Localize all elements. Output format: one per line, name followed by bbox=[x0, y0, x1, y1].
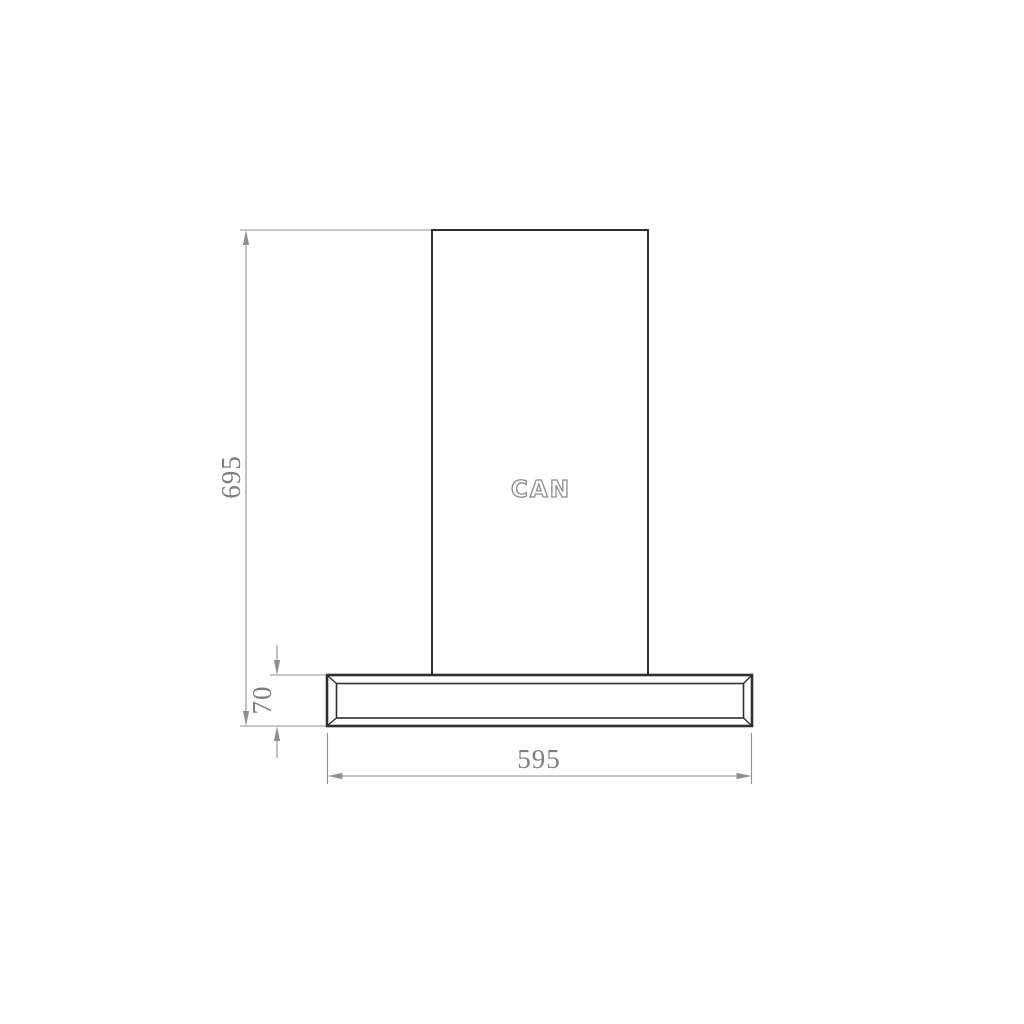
dimension-width: 595 bbox=[328, 733, 752, 784]
hood-bevel-top-right bbox=[743, 676, 751, 684]
dimension-body-height: 70 bbox=[247, 645, 325, 758]
dimension-label-body-height: 70 bbox=[247, 686, 277, 715]
range-hood-front-elevation: CAN 695 70 595 bbox=[0, 0, 1024, 1024]
arrow-left-icon bbox=[328, 773, 343, 779]
technical-drawing-canvas: CAN 695 70 595 bbox=[0, 0, 1024, 1024]
product-outline: CAN bbox=[327, 230, 752, 726]
dimension-label-total-height: 695 bbox=[216, 455, 246, 499]
arrow-right-icon bbox=[737, 773, 752, 779]
arrow-up-icon bbox=[274, 726, 280, 741]
arrow-down-icon bbox=[274, 660, 280, 675]
hood-bevel-top-left bbox=[328, 676, 337, 684]
dimension-label-width: 595 bbox=[517, 744, 561, 774]
hood-body-inner-panel bbox=[337, 684, 744, 719]
hood-bevel-bottom-right bbox=[743, 718, 751, 726]
brand-logo: CAN bbox=[511, 477, 571, 503]
arrow-up-icon bbox=[243, 230, 249, 245]
dimension-total-height: 695 bbox=[216, 230, 431, 726]
chimney-duct bbox=[432, 230, 648, 675]
hood-bevel-bottom-left bbox=[328, 718, 337, 726]
